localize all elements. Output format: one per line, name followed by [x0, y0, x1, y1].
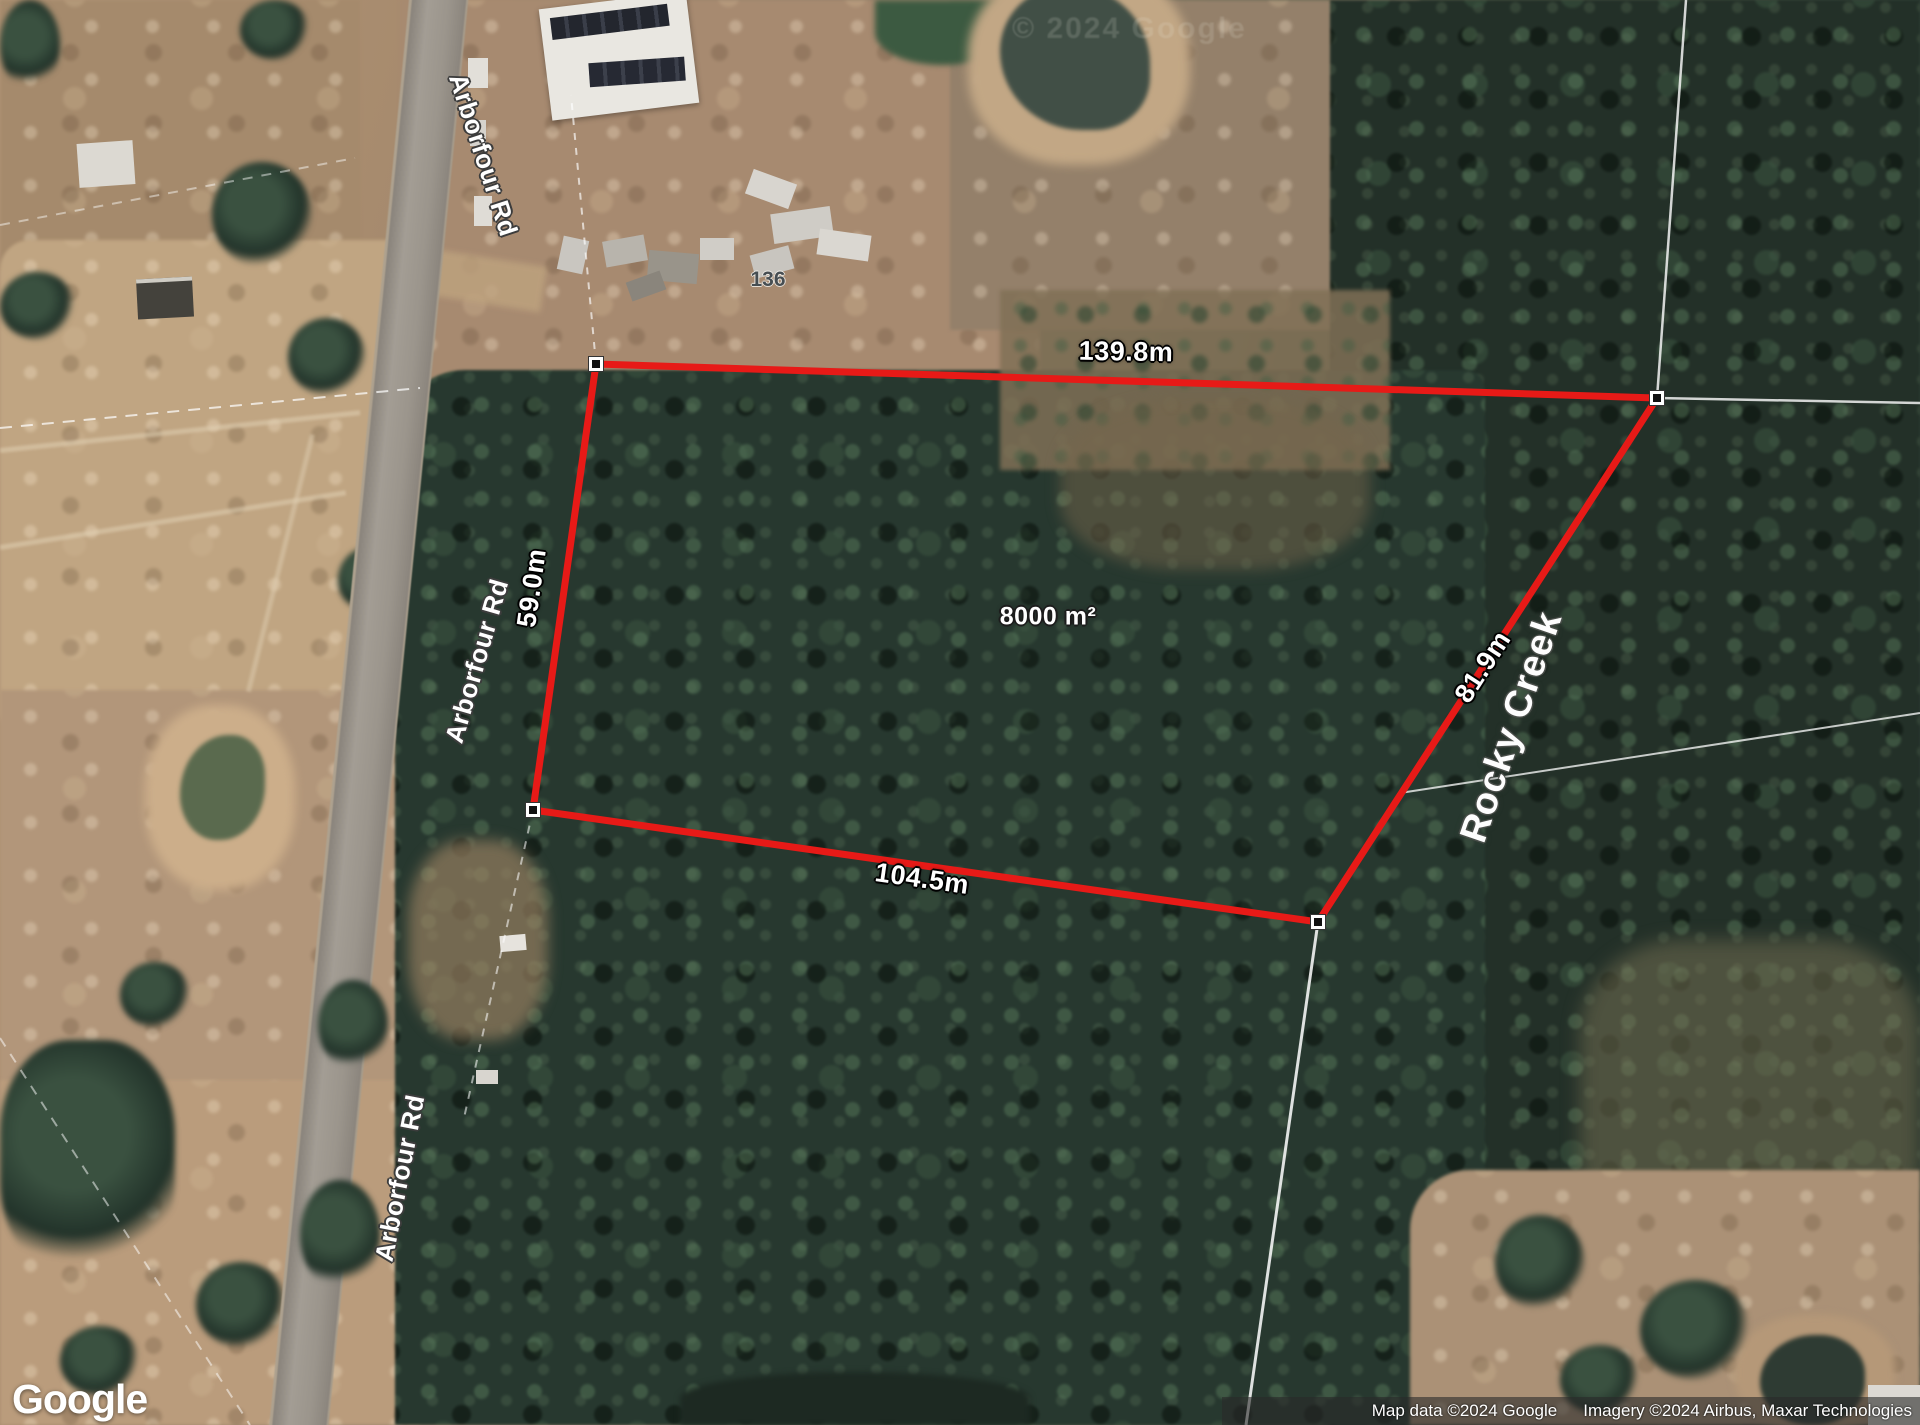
- terrain-clearing-roadside: [408, 840, 548, 1040]
- house-number-label: 136: [750, 268, 785, 292]
- water-bottomcenter: [680, 1372, 1030, 1425]
- measurement-label-top: 139.8m: [1078, 336, 1173, 369]
- yard-equipment: [700, 238, 734, 260]
- tree-clump: [300, 1180, 380, 1290]
- attribution-map-data: Map data ©2024 Google: [1372, 1401, 1558, 1421]
- small-building-white: [77, 140, 136, 188]
- tree-clump: [0, 1040, 175, 1275]
- small-shed-dark: [136, 277, 194, 320]
- solar-panel-array: [588, 57, 685, 88]
- tree-clump: [240, 0, 310, 60]
- solar-panel-array: [550, 4, 670, 40]
- tree-clump: [0, 0, 60, 90]
- tree-clump: [196, 1262, 286, 1348]
- parked-car: [476, 1070, 498, 1084]
- tree-clump: [288, 318, 366, 396]
- parcel-area-label: 8000 m²: [1000, 603, 1097, 632]
- attribution-imagery: Imagery ©2024 Airbus, Maxar Technologies: [1583, 1401, 1912, 1421]
- large-shed: [539, 0, 700, 121]
- tree-clump: [1640, 1280, 1750, 1380]
- tree-clump: [120, 962, 190, 1028]
- tree-clump: [0, 272, 75, 340]
- tree-clump: [212, 162, 312, 267]
- tree-clump: [1495, 1215, 1585, 1310]
- google-logo[interactable]: Google: [12, 1376, 147, 1423]
- imagery-watermark: © 2024 Google: [1012, 12, 1247, 46]
- satellite-map-canvas[interactable]: 139.8m 59.0m 104.5m 81.9m 8000 m² Arborf…: [0, 0, 1920, 1425]
- parked-car: [499, 934, 526, 952]
- terrain-clearing-inside-parcel: [1060, 400, 1370, 570]
- attribution-bar: Map data ©2024 Google Imagery ©2024 Airb…: [1222, 1397, 1920, 1425]
- tree-clump: [318, 980, 388, 1070]
